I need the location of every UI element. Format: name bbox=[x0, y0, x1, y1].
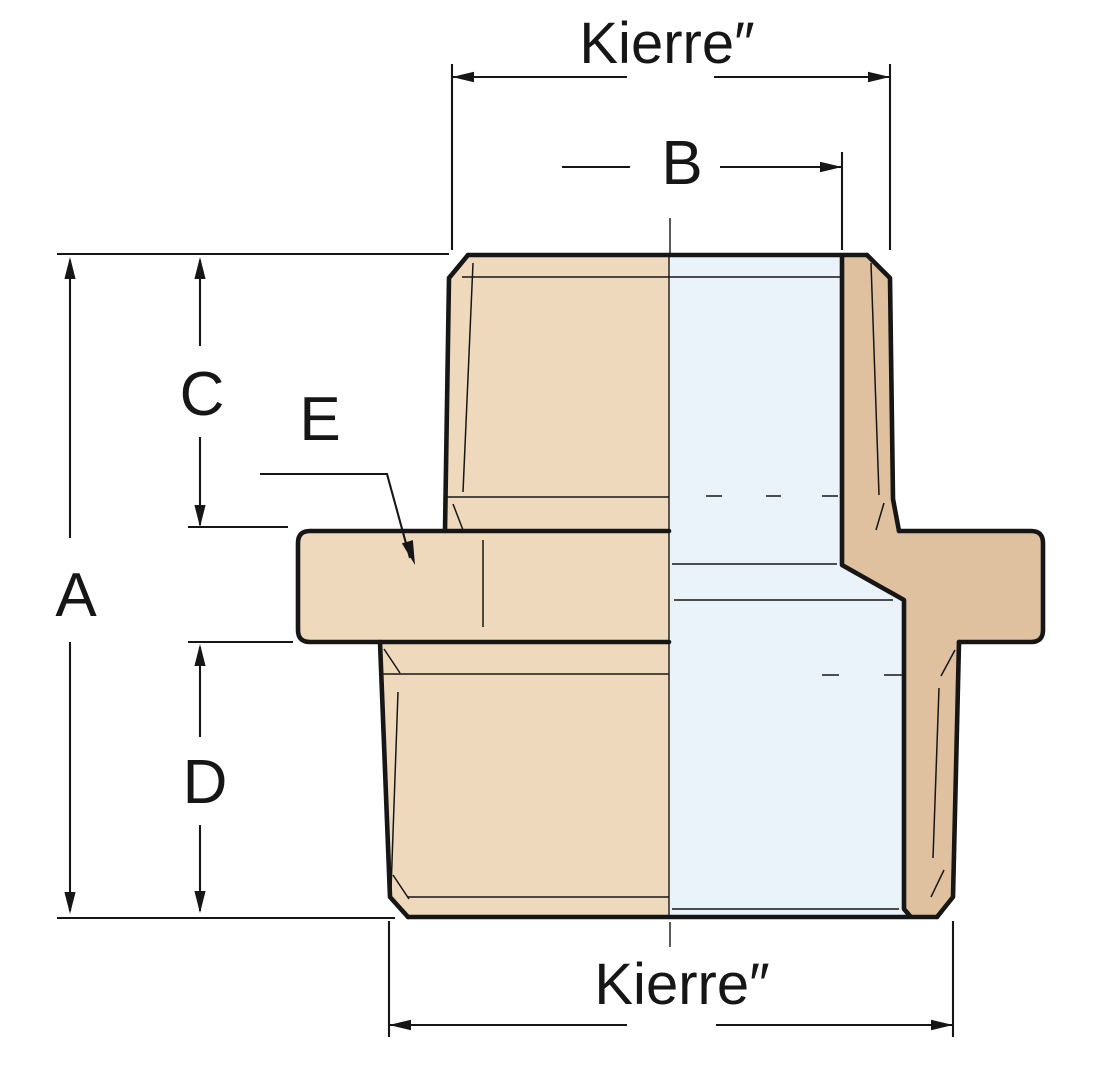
dim-a-label: A bbox=[55, 561, 97, 630]
fitting-dimension-diagram: Kierre″ B A C D E bbox=[0, 0, 1101, 1080]
dim-d-label: D bbox=[183, 748, 228, 817]
dim-e-label: E bbox=[299, 385, 340, 454]
drawing-canvas: Kierre″ B A C D E bbox=[0, 0, 1101, 1080]
thread-top-label: Kierre″ bbox=[579, 11, 754, 76]
dim-b-label: B bbox=[661, 129, 702, 198]
dim-c-label: C bbox=[180, 360, 225, 429]
thread-bottom-label: Kierre″ bbox=[594, 952, 769, 1017]
